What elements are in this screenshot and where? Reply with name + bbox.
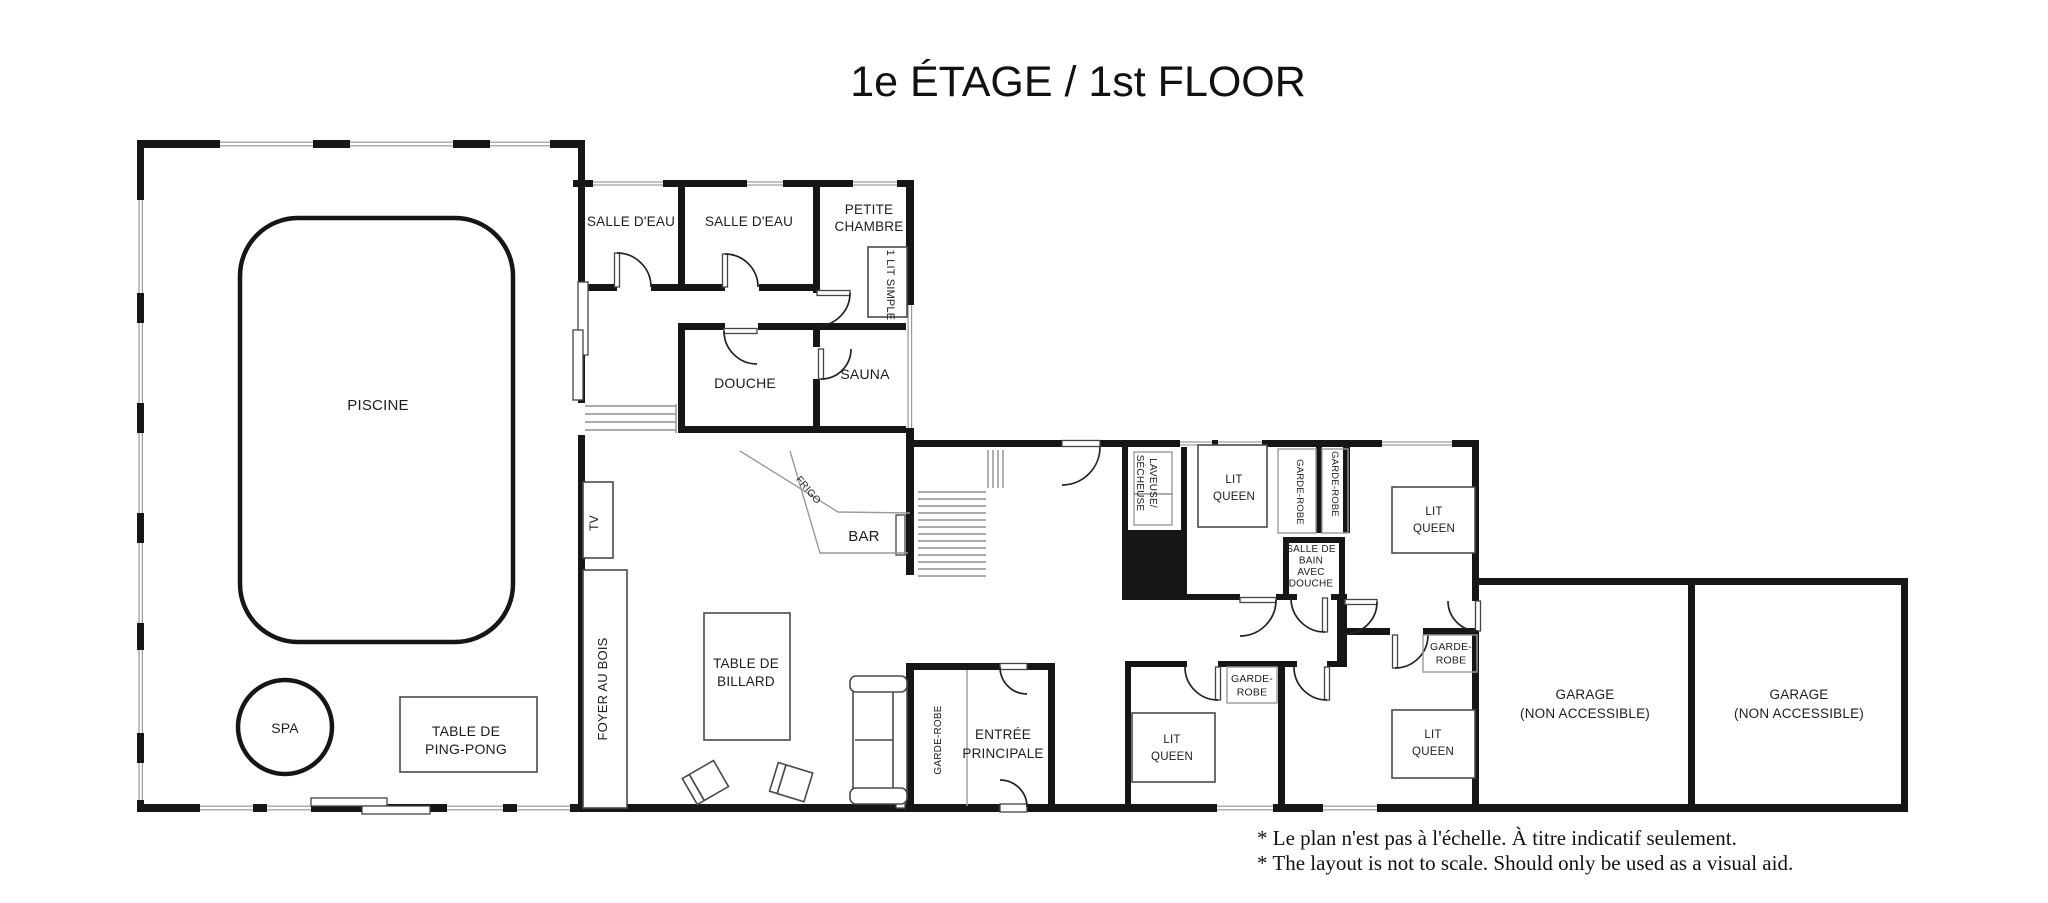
laveuse-secheuse-label: LAVEUSE/SÉCHEUSE [1134, 455, 1158, 512]
queen-bed-4 [1392, 710, 1475, 778]
queen-bed-1 [1198, 445, 1267, 527]
salle-de-bain-label: SALLE DEBAINAVECDOUCHE [1286, 544, 1336, 590]
queen-bed-2 [1392, 487, 1475, 553]
salle-eau-2-label: SALLE D'EAU [705, 214, 793, 229]
door-douche [724, 329, 757, 365]
garde-robe-1-label: GARDE-ROBE [1294, 459, 1305, 525]
chair [770, 763, 813, 802]
floor-plan-canvas: 1e ÉTAGE / 1st FLOOR [0, 0, 2048, 903]
garde-robe-entree-label: GARDE-ROBE [933, 705, 944, 774]
window [747, 180, 783, 187]
door-hall-garage [1448, 601, 1481, 631]
window [220, 140, 313, 148]
window [896, 515, 905, 555]
door-salle-eau-2 [723, 254, 759, 287]
window [447, 804, 503, 812]
floorplan-svg: PISCINESPATABLE DEPING-PONGSALLE D'EAUSA… [0, 0, 2048, 903]
furniture-layer [238, 218, 1477, 808]
disclaimer-notes: * Le plan n'est pas à l'échelle. À titre… [1257, 826, 1793, 875]
garde-robe-4-label: GARDE-ROBE [1430, 641, 1472, 667]
labels-layer: PISCINESPATABLE DEPING-PONGSALLE D'EAUSA… [271, 202, 1864, 775]
disclaimer-line-en: * The layout is not to scale. Should onl… [1257, 851, 1793, 876]
window [137, 433, 144, 513]
foyer-au-bois-label: FOYER AU BOIS [595, 637, 610, 740]
window [517, 804, 570, 812]
bar-counter [740, 451, 910, 553]
sliding-door [362, 806, 430, 814]
disclaimer-line-fr: * Le plan n'est pas à l'échelle. À titre… [1257, 826, 1793, 851]
douche-label: DOUCHE [714, 375, 776, 391]
window [1323, 804, 1377, 812]
door-entrance-inner [1000, 664, 1027, 695]
entree-principale-label: ENTRÉEPRINCIPALE [962, 727, 1043, 761]
window [137, 650, 144, 733]
salle-eau-1-label: SALLE D'EAU [587, 214, 675, 229]
window [1382, 440, 1452, 447]
spa-label: SPA [271, 720, 299, 736]
pool-shape [240, 218, 513, 642]
frigo-label: FRIGO [793, 474, 822, 506]
piscine-label: PISCINE [347, 397, 408, 414]
door-salle-eau-1 [615, 253, 652, 287]
door-corridor [1062, 441, 1100, 486]
door-entrance-main [1000, 780, 1027, 812]
sauna-label: SAUNA [840, 366, 890, 382]
chair [682, 761, 728, 805]
window [906, 330, 914, 428]
bar-label: BAR [848, 528, 879, 545]
window [1217, 804, 1273, 812]
window [350, 140, 453, 148]
lit-simple-label: 1 LIT SIMPLE [884, 250, 896, 321]
sofa [850, 676, 907, 804]
window [573, 330, 583, 400]
window [137, 323, 144, 403]
window [137, 200, 144, 293]
garde-robe-3-label: GARDE-ROBE [1231, 673, 1273, 699]
window [267, 804, 311, 812]
stairs-pool-steps [585, 404, 676, 433]
stairs-main [918, 450, 1003, 576]
door-bedroom-3 [1185, 667, 1221, 700]
window [200, 804, 253, 812]
garage-1-label: GARAGE(NON ACCESSIBLE) [1520, 687, 1650, 721]
door-bedroom-1 [1240, 598, 1276, 637]
garde-robe-2-label: GARDE-ROBE [1329, 451, 1340, 517]
door-petite-chambre [817, 291, 850, 327]
petite-chambre-label: PETITECHAMBRE [835, 202, 904, 234]
window [137, 543, 144, 623]
sliding-door [311, 798, 387, 806]
garage-2-label: GARAGE(NON ACCESSIBLE) [1734, 687, 1864, 721]
window [490, 140, 550, 148]
mechanical-block [1122, 530, 1187, 600]
window [593, 180, 663, 187]
tv-label: TV [587, 515, 601, 531]
window [137, 763, 144, 800]
window [853, 180, 897, 187]
door-salle-de-bain [1291, 598, 1328, 632]
door-bedroom-4 [1294, 667, 1330, 700]
queen-bed-3 [1132, 713, 1215, 782]
